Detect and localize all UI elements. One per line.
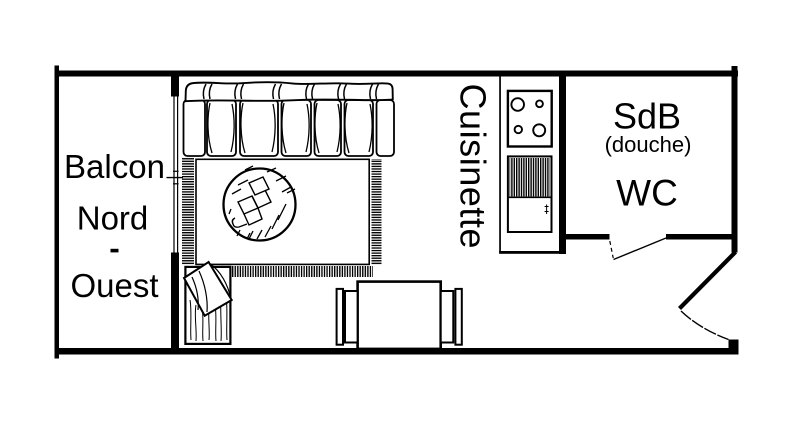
svg-text:Ouest: Ouest [70,267,158,304]
svg-text:SdB: SdB [613,96,681,137]
svg-text:Nord: Nord [77,199,149,236]
svg-text:WC: WC [616,172,678,213]
svg-text:Cuisinette: Cuisinette [453,84,494,250]
svg-text:Balcon: Balcon [64,148,165,185]
svg-text:(douche): (douche) [605,132,692,157]
